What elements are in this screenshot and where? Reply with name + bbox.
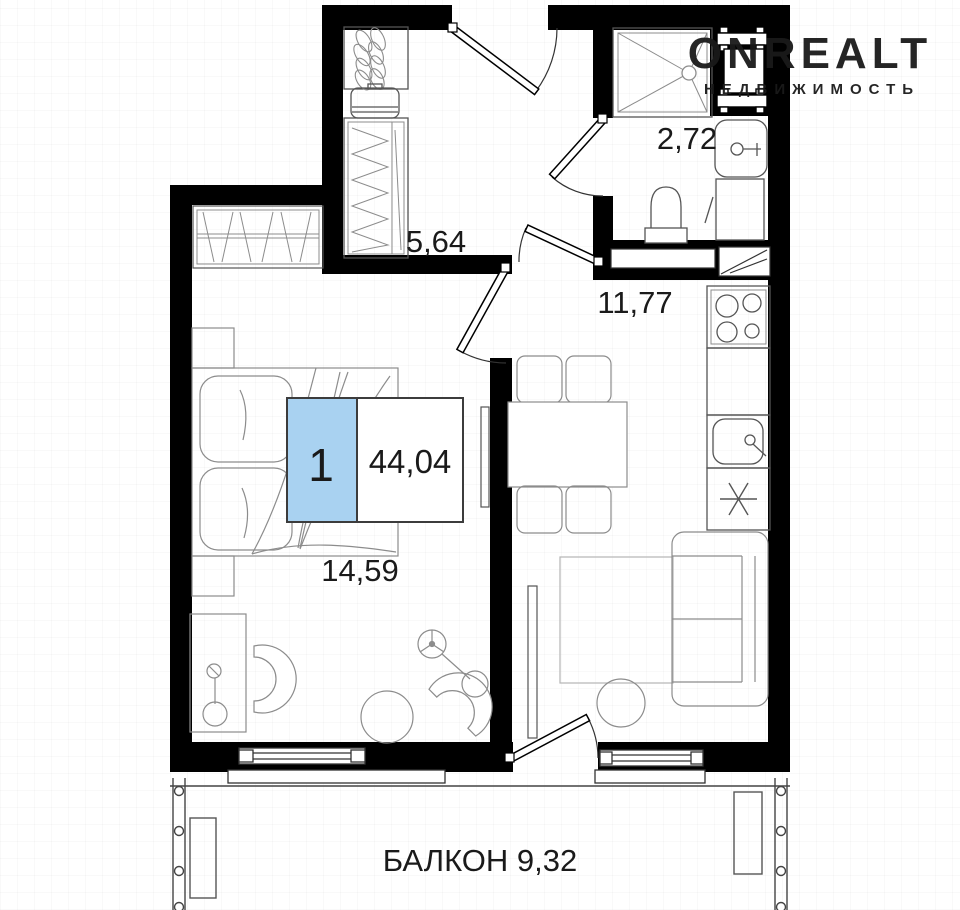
balcony-rail-right [775,778,787,910]
kitchen-door [519,225,603,266]
dining-chair [566,356,611,403]
toilet [645,187,687,243]
balcony-door [505,715,598,762]
bathroom-sink [715,120,767,177]
balcony-door-hinge [505,753,514,762]
hallway-furniture [344,26,408,258]
bedroom-door [457,263,510,363]
dining-chair [566,486,611,533]
label-balcony: БАЛКОН 9,32 [383,843,578,878]
label-bathroom-area: 2,72 [657,121,717,156]
kitchen-sink [707,415,770,468]
living-window [595,750,705,783]
washing-machine [705,179,764,240]
wall-hallway-left [322,5,343,274]
wall-top-right [548,5,790,30]
refrigerator [707,468,770,530]
unit-rooms-count: 1 [308,439,334,491]
wall-outer-left [170,185,192,772]
shoe-cabinet [344,26,408,93]
pillow-2 [200,468,292,550]
watermark-tagline: НЕДВИЖИМОСТЬ [704,81,920,98]
desk [190,614,246,732]
label-bedroom-area: 14,59 [321,553,399,588]
watermark-brand: ONREALT [688,29,932,78]
bedroom-tv [481,407,489,507]
living-ottoman [597,679,645,727]
bathroom-door-leaf [550,118,606,179]
balcony-planter-left [190,818,216,898]
bedroom-ottoman [361,691,413,743]
living-sideboard [528,586,537,738]
living-window-sill [595,770,705,783]
balcony-planter-right [734,792,762,874]
wall-bath-stub-bottom [593,196,613,244]
bedroom-wardrobe [193,206,323,268]
rug [560,557,673,683]
entrance-door-hinge [448,23,457,32]
bathroom-door-hinge [598,114,607,123]
bedroom-door-leaf [457,266,509,352]
unit-total-area: 44,04 [369,443,452,480]
wall-outer-right [768,28,790,772]
watermark: ONREALT НЕДВИЖИМОСТЬ [688,29,932,98]
shoes [351,26,389,93]
nightstand-bottom [192,556,234,596]
unit-badge: 1 44,04 [287,398,463,522]
dining-table-set [508,356,627,533]
stove [707,286,770,348]
dining-table [508,402,627,487]
bathroom-door [550,114,607,196]
desk-lamp [203,664,227,726]
label-kitchen-living-area: 11,77 [597,285,672,320]
balcony-rail-left [173,778,185,910]
floor-plan-svg: 1 44,04 2,72 5,64 11,77 14,59 БАЛКОН 9,3… [0,0,960,910]
balcony-door-leaf [510,715,589,762]
entrance-door-leaf [450,25,539,94]
floor-plan-image: 1 44,04 2,72 5,64 11,77 14,59 БАЛКОН 9,3… [0,0,960,910]
bedroom-window-sill [228,770,445,783]
dining-chair [517,356,562,403]
entrance-door [448,23,557,95]
kitchen-furniture [707,286,770,530]
wall-bath-stub-top [593,28,613,118]
dining-chair [517,486,562,533]
vent-niche [611,249,715,268]
bedroom-door-hinge [501,263,510,272]
label-hallway-area: 5,64 [406,224,466,259]
sofa [672,532,768,706]
nightstand-top [192,328,234,368]
kitchen-door-hinge [594,257,603,266]
closet-hanger-zigzag [352,128,388,252]
living-furniture [508,356,768,738]
kitchen-door-leaf [525,225,600,265]
hallway-closet [344,118,408,258]
wall-bedroom-top [170,185,343,205]
desk-chair [254,645,296,713]
kitchen-counter [707,348,770,415]
